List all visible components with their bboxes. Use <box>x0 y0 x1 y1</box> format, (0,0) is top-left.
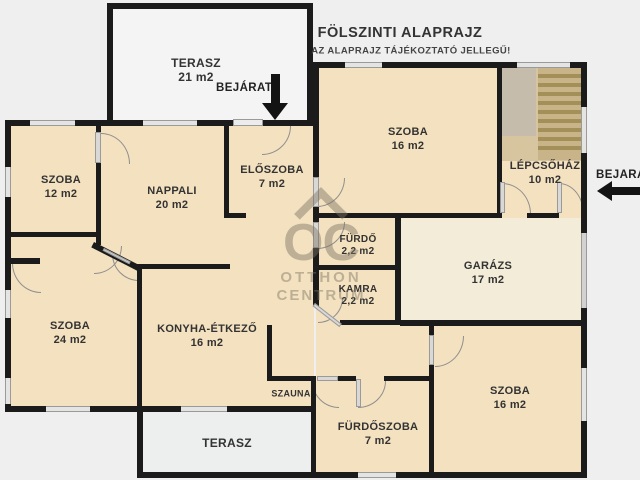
wall <box>313 265 401 270</box>
wall <box>384 376 429 381</box>
stair-tread <box>538 146 583 150</box>
entrance-arrow-top <box>271 74 280 104</box>
door-leaf <box>233 119 263 126</box>
wall <box>311 376 316 478</box>
room-label-lepcsohaz: LÉPCSŐHÁZ 10 m2 <box>510 159 581 187</box>
wall <box>429 320 434 335</box>
wall <box>137 406 143 478</box>
wall <box>140 264 230 269</box>
wall <box>5 258 40 264</box>
room-label-eloszoba: ELŐSZOBA 7 m2 <box>240 163 304 191</box>
plan-title: FÖLSZINTI ALAPRAJZ <box>318 25 483 41</box>
wall <box>5 120 11 412</box>
entrance-arrow-right-head <box>597 181 612 201</box>
stair-tread <box>538 92 583 96</box>
window <box>181 406 227 412</box>
window <box>46 406 90 412</box>
door-leaf <box>313 222 319 248</box>
stair-tread <box>538 137 583 141</box>
wall <box>137 264 142 406</box>
door-leaf <box>500 182 505 213</box>
entrance-arrow-top-head <box>262 103 288 120</box>
window <box>517 62 570 68</box>
window <box>345 62 382 68</box>
entrance-arrow-right <box>611 187 640 195</box>
room-label-furdoszoba: FÜRDŐSZOBA 7 m2 <box>338 420 419 448</box>
wall <box>313 62 319 177</box>
wall <box>267 376 316 381</box>
room-label-garazs: GARÁZS 17 m2 <box>464 259 512 287</box>
room-label-konyha: KONYHA-ÉTKEZŐ 16 m2 <box>157 322 257 350</box>
window <box>581 368 587 421</box>
wall <box>107 3 113 125</box>
entrance-label-top: BEJÁRAT <box>216 82 272 94</box>
stair-tread <box>538 83 583 87</box>
window <box>581 107 587 153</box>
wall <box>400 320 581 326</box>
room-label-szoba-br: SZOBA 16 m2 <box>490 384 530 412</box>
room-label-szoba-tr: SZOBA 16 m2 <box>388 125 428 153</box>
wall <box>140 406 316 412</box>
room-label-szauna: SZAUNA <box>271 389 310 400</box>
room-label-terasz-top: TERASZ 21 m2 <box>171 56 221 84</box>
wall <box>338 376 356 381</box>
door-leaf <box>317 376 338 381</box>
wall <box>5 232 101 237</box>
stair-tread <box>538 74 583 78</box>
wall <box>313 213 500 218</box>
room-label-furdo: FÜRDŐ 2,2 m2 <box>339 234 376 258</box>
wall <box>224 213 246 218</box>
room-label-szoba24: SZOBA 24 m2 <box>50 319 90 347</box>
door-leaf <box>313 177 319 207</box>
window <box>5 378 11 404</box>
room-label-nappali: NAPPALI 20 m2 <box>147 184 197 212</box>
wall <box>340 320 401 325</box>
wall <box>313 248 319 306</box>
wall <box>224 120 229 215</box>
room-label-terasz-bottom: TERASZ <box>202 436 252 450</box>
wall <box>107 3 313 9</box>
door-leaf <box>429 335 434 365</box>
stair-shadow <box>502 66 536 136</box>
wall <box>429 365 434 472</box>
wall <box>527 213 559 218</box>
stair-tread <box>538 101 583 105</box>
floor-plan: FÖLSZINTI ALAPRAJZ AZ ALAPRAJZ TÁJÉKOZTA… <box>0 0 640 480</box>
garage-door <box>581 233 587 308</box>
window <box>5 290 11 318</box>
window <box>5 167 11 197</box>
plan-subtitle: AZ ALAPRAJZ TÁJÉKOZTATÓ JELLEGŰ! <box>311 46 510 57</box>
window <box>30 120 75 126</box>
window <box>143 120 197 126</box>
door-leaf <box>95 132 101 163</box>
stair-tread <box>538 119 583 123</box>
window <box>358 472 396 478</box>
stair-tread <box>538 128 583 132</box>
stair-tread <box>538 110 583 114</box>
room-label-szoba12: SZOBA 12 m2 <box>41 173 81 201</box>
entrance-label-right: BEJÁRAT <box>596 169 640 181</box>
wall <box>267 325 272 380</box>
room-label-kamra: KAMRA 2,2 m2 <box>339 284 378 308</box>
door-leaf <box>356 379 361 407</box>
